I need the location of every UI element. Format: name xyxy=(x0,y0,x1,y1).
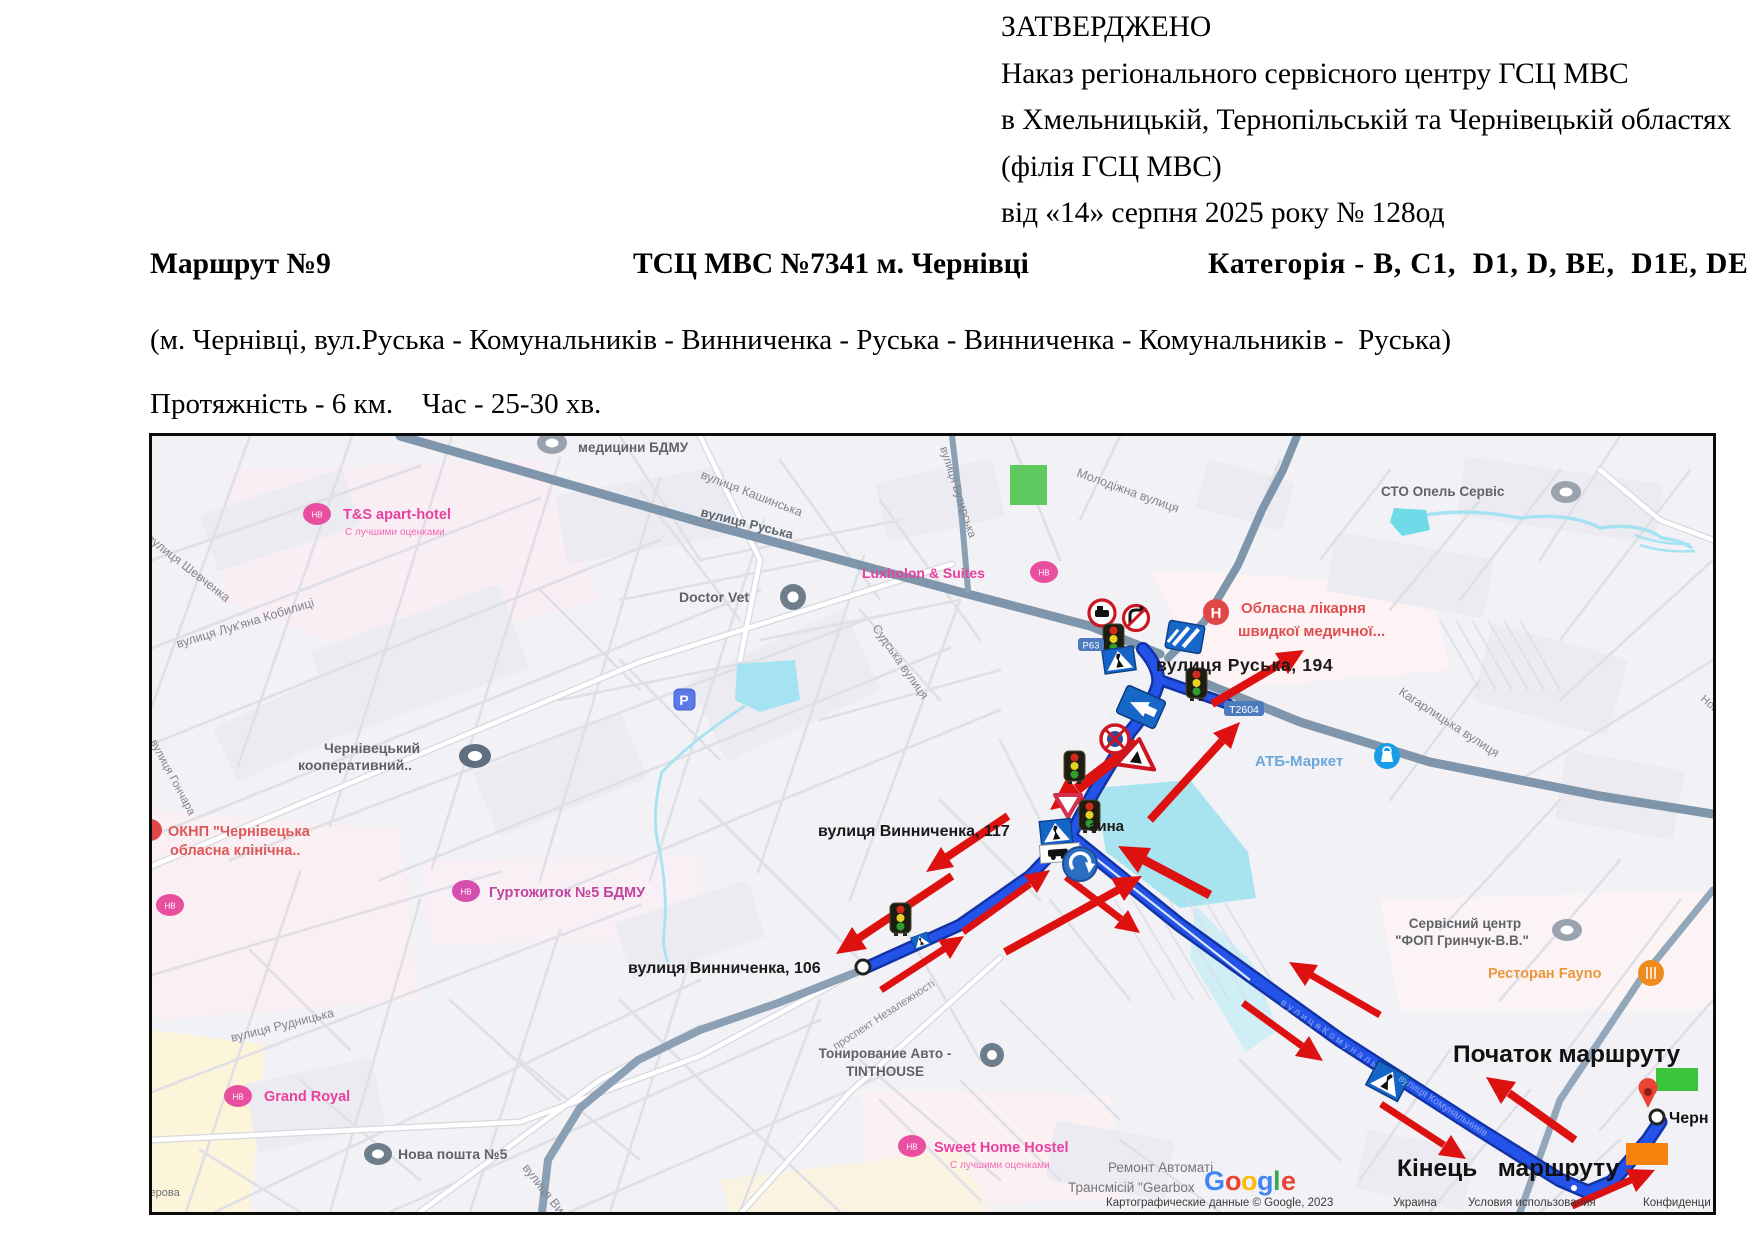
svg-text:АТБ-Маркет: АТБ-Маркет xyxy=(1255,753,1343,770)
svg-text:НВ: НВ xyxy=(311,511,322,520)
svg-text:ОКНП "Чернівецька: ОКНП "Чернівецька xyxy=(168,824,311,840)
svg-text:НВ: НВ xyxy=(164,902,175,911)
svg-text:Ремонт Автоматі: Ремонт Автоматі xyxy=(1108,1160,1213,1175)
svg-text:Чернівецький: Чернівецький xyxy=(324,740,420,756)
svg-text:Конфиденци: Конфиденци xyxy=(1643,1197,1711,1209)
svg-text:Обласна лікарня: Обласна лікарня xyxy=(1241,600,1366,617)
svg-text:Условия использования: Условия использования xyxy=(1468,1197,1596,1209)
svg-text:Sweet Home Hostel: Sweet Home Hostel xyxy=(934,1140,1069,1156)
svg-text:СТО Опель Сервіс: СТО Опель Сервіс xyxy=(1381,484,1505,499)
svg-text:Украина: Украина xyxy=(1393,1197,1437,1209)
svg-text:НВ: НВ xyxy=(906,1143,917,1152)
svg-text:l: l xyxy=(1273,1166,1281,1196)
svg-text:Ресторан Fayno: Ресторан Fayno xyxy=(1488,966,1602,982)
svg-text:Grand Royal: Grand Royal xyxy=(264,1089,350,1105)
svg-text:аина: аина xyxy=(1089,818,1125,835)
svg-text:вулиця Винниченка, 106: вулиця Винниченка, 106 xyxy=(628,960,821,977)
svg-text:обласна клінічна..: обласна клінічна.. xyxy=(170,843,300,859)
svg-text:Н: Н xyxy=(1211,605,1222,622)
svg-text:o: o xyxy=(1225,1166,1242,1196)
svg-text:"ФОП Гринчук-В.В.": "ФОП Гринчук-В.В." xyxy=(1395,933,1529,948)
svg-text:G: G xyxy=(1204,1166,1225,1196)
svg-text:НВ: НВ xyxy=(460,888,471,897)
svg-text:g: g xyxy=(1257,1166,1274,1196)
svg-text:С лучшими оценками: С лучшими оценками xyxy=(950,1160,1050,1171)
svg-text:Doctor Vet: Doctor Vet xyxy=(679,589,749,605)
svg-text:вулиця Руська, 194: вулиця Руська, 194 xyxy=(1156,655,1333,675)
svg-text:Черн: Черн xyxy=(1669,1110,1709,1127)
svg-text:Кінець маршруту: Кінець маршруту xyxy=(1397,1155,1620,1182)
svg-text:кооперативний..: кооперативний.. xyxy=(298,757,412,773)
svg-text:НВ: НВ xyxy=(232,1093,243,1102)
svg-text:P: P xyxy=(679,692,688,708)
svg-text:медицини БДМУ: медицини БДМУ xyxy=(578,440,689,455)
svg-text:Гуртожиток №5 БДМУ: Гуртожиток №5 БДМУ xyxy=(489,885,646,901)
svg-text:мерова: мерова xyxy=(152,1187,181,1199)
svg-text:e: e xyxy=(1281,1166,1296,1196)
svg-text:Т2604: Т2604 xyxy=(1229,704,1259,716)
svg-text:o: o xyxy=(1241,1166,1258,1196)
svg-text:Luxholon & Suites: Luxholon & Suites xyxy=(862,565,985,581)
svg-text:Тонирование Авто -: Тонирование Авто - xyxy=(819,1046,952,1061)
svg-text:Сервісний центр: Сервісний центр xyxy=(1409,916,1521,931)
svg-text:вулиця Винниченка, 117: вулиця Винниченка, 117 xyxy=(818,823,1010,840)
svg-text:НВ: НВ xyxy=(1038,569,1049,578)
svg-text:Картографические данные © Goog: Картографические данные © Google, 2023 xyxy=(1106,1197,1333,1209)
svg-text:Нова пошта №5: Нова пошта №5 xyxy=(398,1146,508,1162)
svg-text:Початок маршруту: Початок маршруту xyxy=(1453,1041,1681,1068)
svg-text:Р63: Р63 xyxy=(1083,641,1100,652)
svg-text:Трансмісій "Gearbox: Трансмісій "Gearbox xyxy=(1068,1180,1195,1195)
svg-text:TINTHOUSE: TINTHOUSE xyxy=(846,1064,924,1079)
svg-text:T&S apart-hotel: T&S apart-hotel xyxy=(343,507,451,523)
svg-text:швидкої медичної...: швидкої медичної... xyxy=(1238,623,1385,640)
svg-text:С лучшими оценками: С лучшими оценками xyxy=(345,527,445,538)
